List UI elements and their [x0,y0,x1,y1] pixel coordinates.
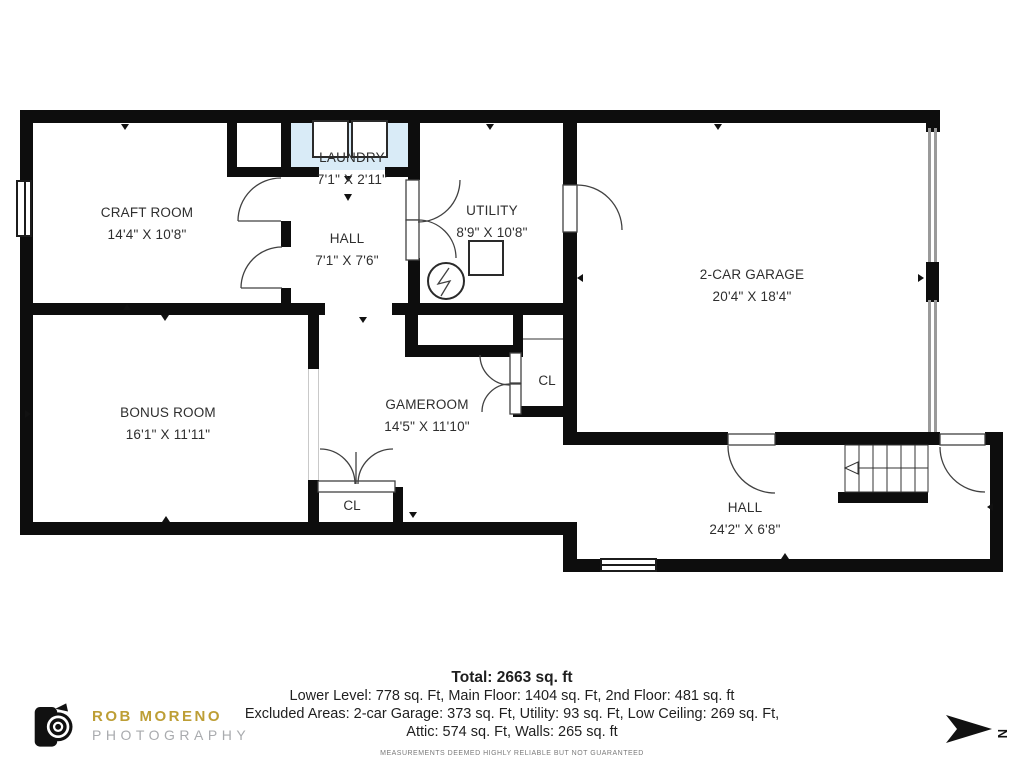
stairs [845,445,928,492]
closet-shelf-line [523,338,563,340]
room-label-bonus: BONUS ROOM 16'1" X 11'11" [120,402,216,446]
room-label-garage: 2-CAR GARAGE 20'4" X 18'4" [700,264,804,308]
wall-segment [563,432,728,445]
wall-segment [393,487,403,522]
wall-segment [405,345,523,357]
window [16,180,32,237]
door-utility-double [406,180,460,260]
room-name: UTILITY [456,200,527,222]
door-garage-hall [728,434,775,493]
room-label-hall-lower: HALL 24'2" X 6'8" [709,497,780,541]
wall-segment [291,167,319,177]
wall-segment [20,110,940,123]
door-hall-right [940,434,985,492]
stairs-direction-arrow [845,462,858,474]
room-name: HALL [315,228,378,250]
wall-segment [838,492,928,503]
room-name: CRAFT ROOM [101,202,194,224]
disclaimer-text: MEASUREMENTS DEEMED HIGHLY RELIABLE BUT … [0,750,1024,757]
summary-total: Total: 2663 sq. ft [0,668,1024,687]
room-name: 2-CAR GARAGE [700,264,804,286]
room-label-gameroom: GAMEROOM 14'5" X 11'10" [384,394,470,438]
garage-door [934,128,937,262]
room-label-craft: CRAFT ROOM 14'4" X 10'8" [101,202,194,246]
opening-edge [318,369,319,480]
door-utility-garage [563,185,622,232]
floor-plan-page: CRAFT ROOM 14'4" X 10'8" LAUNDRY 7'1" X … [0,0,1024,768]
logo-subtitle: PHOTOGRAPHY [92,727,250,743]
room-dims: 8'9" X 10'8" [456,222,527,244]
north-label: N [995,729,1010,738]
wall-segment [392,303,577,315]
room-label-hall-upper: HALL 7'1" X 7'6" [315,228,378,272]
room-dims: 14'5" X 11'10" [384,416,470,438]
water-heater [427,262,465,300]
room-name: BONUS ROOM [120,402,216,424]
wall-segment [408,110,420,180]
room-label-utility: UTILITY 8'9" X 10'8" [456,200,527,244]
wall-segment [20,522,577,535]
door-craft-closet [238,178,281,221]
garage-door [928,128,931,262]
closet-label: CL [538,373,555,388]
opening-edge [308,369,309,480]
room-dims: 16'1" X 11'11" [120,424,216,446]
camera-icon [32,699,86,751]
room-name: LAUNDRY [317,147,387,169]
door-bonus-closet [318,449,395,492]
door-craft-hall [241,247,282,288]
room-name: GAMEROOM [384,394,470,416]
wall-segment [20,110,33,535]
window [600,558,657,572]
wall-segment [227,167,291,177]
wall-segment [513,315,523,355]
furnace [468,240,504,276]
wall-segment [281,221,291,247]
wall-segment [563,522,577,572]
north-arrow-icon [946,715,992,743]
room-dims: 7'1" X 2'11" [317,169,387,191]
room-dims: 7'1" X 7'6" [315,250,378,272]
wall-segment [20,303,325,315]
garage-door [928,300,931,432]
wall-segment [308,315,319,369]
door-gameroom-closet [480,353,521,414]
garage-door [934,300,937,432]
closet-label: CL [343,498,360,513]
wall-segment [775,432,940,445]
room-label-laundry: LAUNDRY 7'1" X 2'11" [317,147,387,191]
room-dims: 14'4" X 10'8" [101,224,194,246]
photographer-logo: ROB MORENO PHOTOGRAPHY [32,699,250,751]
wall-segment [563,110,577,185]
room-name: HALL [709,497,780,519]
wall-segment [990,432,1003,572]
wall-segment [926,262,939,302]
logo-name: ROB MORENO [92,708,250,725]
north-compass: N [938,703,1018,755]
room-dims: 20'4" X 18'4" [700,286,804,308]
wall-segment [513,406,577,417]
room-dims: 24'2" X 6'8" [709,519,780,541]
closet-top-line [318,487,393,489]
